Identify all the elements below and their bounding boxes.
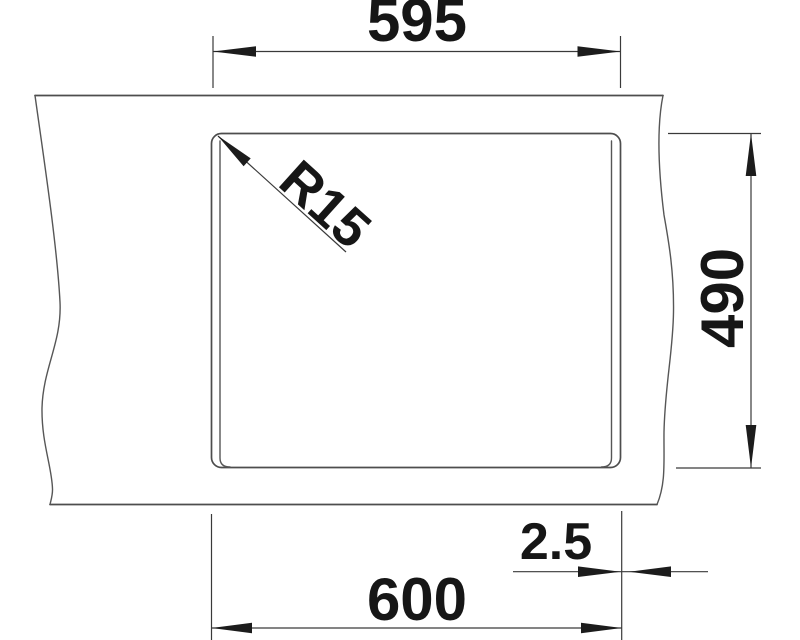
arrow-left-icon [629,566,671,577]
arrow-right-icon [578,46,621,57]
dim-label-2-5: 2.5 [520,513,592,571]
worktop-outline [35,96,674,505]
arrow-down-icon [746,425,757,468]
dimension-depth: 490 [668,134,761,469]
arrow-right-icon [581,623,622,634]
leader-arrow-icon [218,136,251,167]
worktop-left-break-edge [35,96,60,505]
technical-drawing: 595 490 600 2.5 [0,0,800,640]
dim-label-490: 490 [689,248,756,348]
dim-label-r15: R15 [268,149,382,260]
cutout-rect [212,134,621,468]
dim-label-595: 595 [367,0,467,54]
bowl-left-edge [220,141,230,467]
bowl-right-edge [602,141,612,467]
arrow-left-icon [212,623,253,634]
arrow-up-icon [746,134,757,177]
arrow-left-icon [213,46,256,57]
dim-label-600: 600 [367,566,467,633]
dimension-edge-offset: 2.5 [513,513,708,577]
worktop-right-break-edge [657,96,674,505]
sink-cutout [212,134,621,468]
radius-callout: R15 [218,136,382,261]
drawing-canvas: 595 490 600 2.5 [0,0,800,640]
dimension-cutout-width: 595 [213,0,621,88]
